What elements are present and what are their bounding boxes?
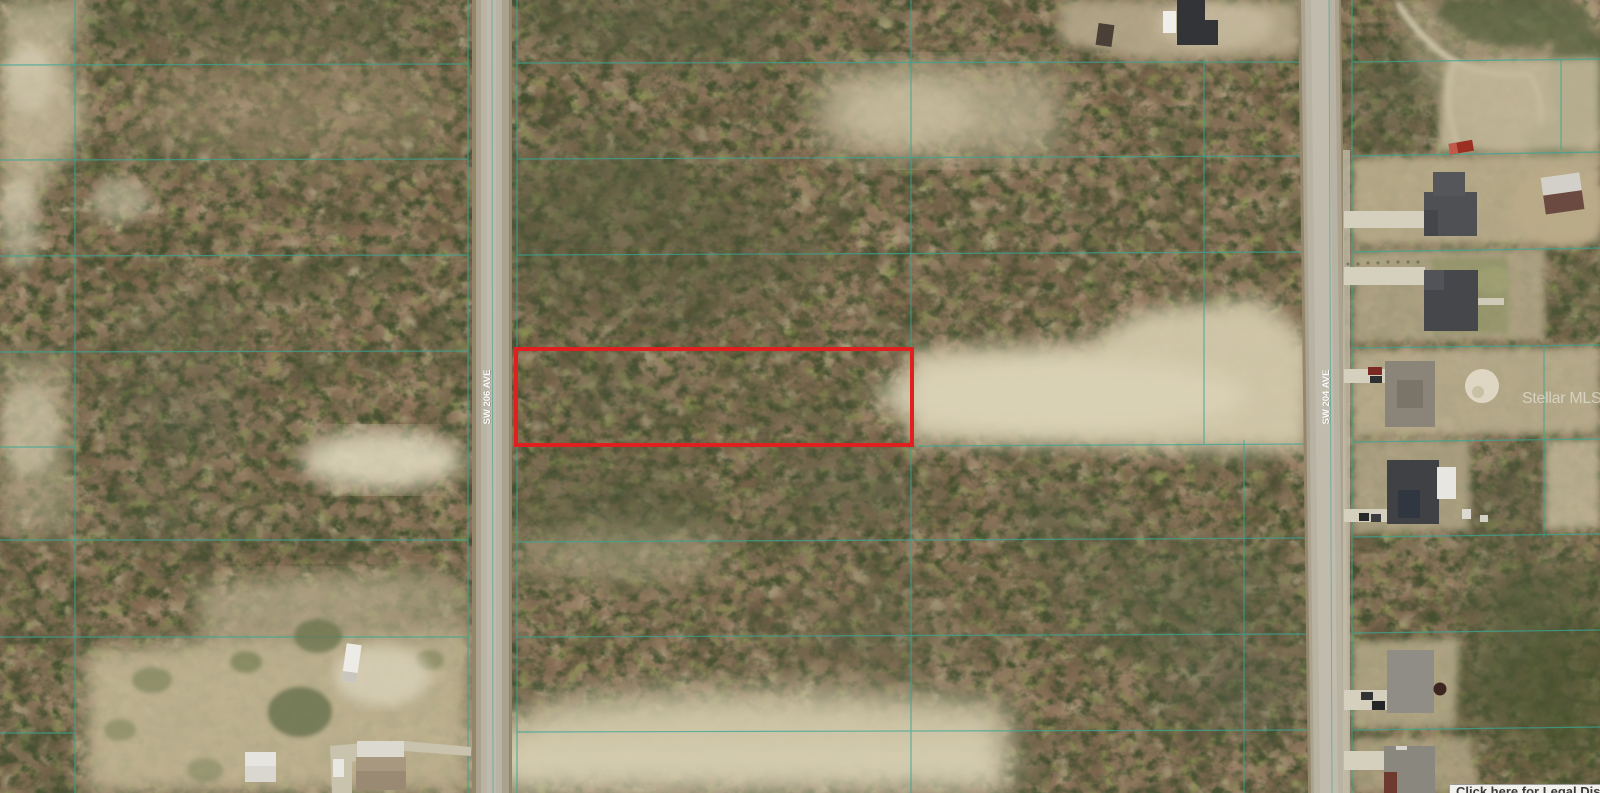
svg-text:Stellar MLS: Stellar MLS (1522, 390, 1600, 407)
svg-text:SW 204 AVE: SW 204 AVE (1321, 370, 1332, 425)
svg-text:Click here for Legal Discl: Click here for Legal Discl (1456, 784, 1600, 793)
svg-text:SW 206 AVE: SW 206 AVE (482, 370, 493, 425)
